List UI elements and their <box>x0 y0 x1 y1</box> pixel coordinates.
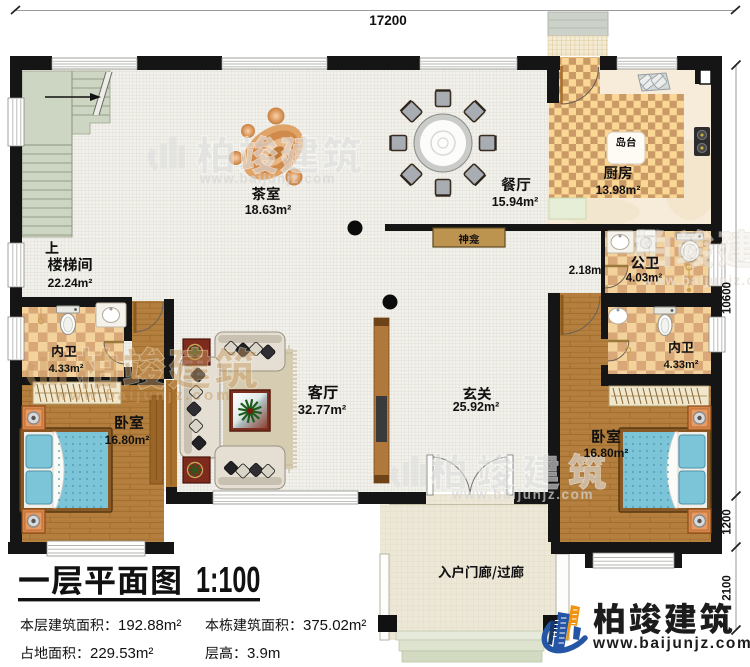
svg-text:4.33m²: 4.33m² <box>664 359 699 371</box>
svg-text:375.02m²: 375.02m² <box>303 617 366 634</box>
svg-text:22.24m²: 22.24m² <box>48 276 93 290</box>
svg-text:www.baijunjz.com: www.baijunjz.com <box>199 171 336 186</box>
svg-text:15.94m²: 15.94m² <box>492 195 539 209</box>
svg-text:2100: 2100 <box>722 575 734 601</box>
svg-text:1200: 1200 <box>722 509 734 535</box>
svg-text:16.80m²: 16.80m² <box>105 433 150 447</box>
svg-text:16.80m²: 16.80m² <box>584 446 629 460</box>
svg-text:18.63m²: 18.63m² <box>245 203 292 217</box>
svg-text:3.9m: 3.9m <box>247 645 280 662</box>
svg-text:4.03m²: 4.03m² <box>626 273 663 285</box>
svg-text:www.baijunjz.com: www.baijunjz.com <box>451 487 594 502</box>
svg-text:4.33m²: 4.33m² <box>49 363 84 375</box>
svg-text:www.baijunjz.com: www.baijunjz.com <box>592 635 750 652</box>
svg-text:229.53m²: 229.53m² <box>90 645 153 662</box>
svg-text:192.88m²: 192.88m² <box>118 617 181 634</box>
svg-text:2.18m²: 2.18m² <box>569 265 606 277</box>
svg-text:25.92m²: 25.92m² <box>453 400 500 414</box>
svg-text:32.77m²: 32.77m² <box>298 402 347 417</box>
svg-text:www.baijunjz.com: www.baijunjz.com <box>54 387 232 404</box>
svg-text:1:100: 1:100 <box>196 560 260 601</box>
svg-text:10600: 10600 <box>722 282 734 314</box>
svg-text:17200: 17200 <box>369 13 407 28</box>
svg-text:13.98m²: 13.98m² <box>596 183 641 197</box>
